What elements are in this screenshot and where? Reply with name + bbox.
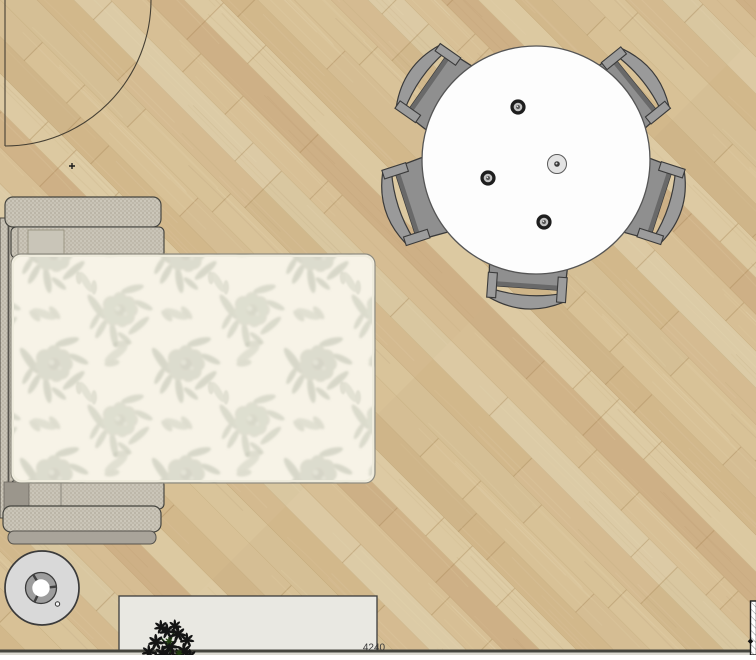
svg-text:4240: 4240 [363, 643, 386, 654]
